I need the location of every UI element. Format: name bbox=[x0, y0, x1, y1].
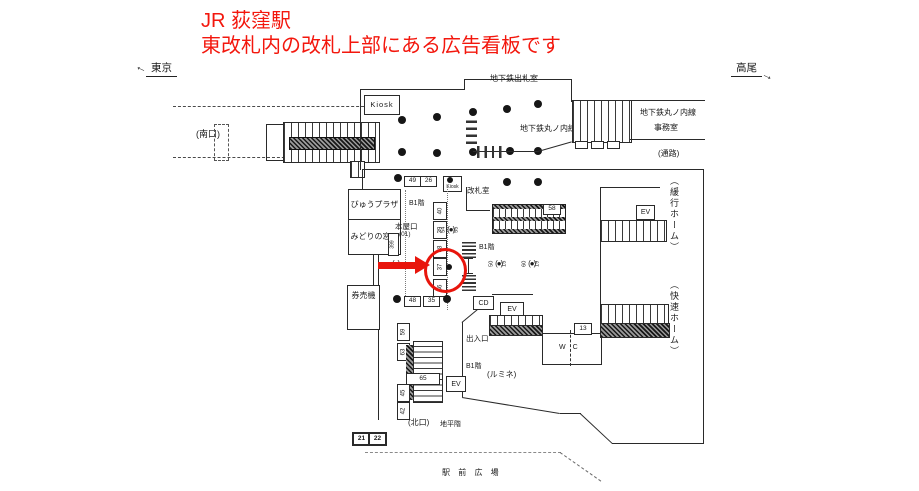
pillar-dot bbox=[393, 295, 401, 303]
annotation-circle bbox=[424, 248, 467, 293]
pillar-dot bbox=[534, 100, 542, 108]
position-box-58: 58 bbox=[543, 204, 561, 215]
marunouchi-stairs bbox=[572, 100, 632, 143]
hanging-sign: 50(●)15 bbox=[489, 260, 508, 268]
page-subtitle: 東改札内の改札上部にある広告看板です bbox=[201, 29, 561, 58]
gate-machines bbox=[493, 221, 565, 229]
gate-rail bbox=[493, 229, 565, 233]
rapid-platform-stairs bbox=[600, 304, 669, 325]
subway-gates bbox=[477, 146, 504, 158]
pillar-dot bbox=[433, 149, 441, 157]
billboard-box-40: 40 bbox=[433, 202, 447, 220]
rapid-platform-stairs-lower bbox=[600, 323, 670, 338]
wall-line bbox=[378, 322, 379, 420]
hanging-sign: 60(●)19 bbox=[522, 260, 541, 268]
wall-line bbox=[464, 79, 465, 90]
cd-box: CD bbox=[473, 296, 494, 310]
station-map: JR 荻窪駅 東改札内の改札上部にある広告看板です 東京 → 高尾 → (南口)… bbox=[0, 0, 919, 491]
position-box-26: 26 bbox=[420, 176, 437, 187]
direction-takao: 高尾 bbox=[731, 60, 762, 77]
stair-foot bbox=[575, 141, 588, 149]
station-square-label: 駅 前 広 場 bbox=[442, 467, 502, 478]
corridor-line bbox=[173, 106, 369, 107]
pillar-dot bbox=[443, 295, 451, 303]
entrance-label: 出入口 bbox=[466, 333, 489, 344]
position-box-22: 22 bbox=[368, 432, 387, 446]
ticket-machines-room: 券売機 bbox=[347, 285, 380, 330]
wall-line bbox=[560, 413, 581, 414]
b1-mid-label: B1階 bbox=[479, 242, 495, 252]
wall-line bbox=[362, 169, 363, 190]
wall-line bbox=[373, 253, 374, 286]
wall-line bbox=[362, 169, 703, 170]
central-stairs-lower bbox=[489, 325, 543, 336]
wall-line bbox=[630, 139, 705, 140]
ev-box-north: EV bbox=[446, 376, 466, 392]
pillar-dot bbox=[503, 178, 511, 186]
pillar-dot bbox=[447, 177, 453, 183]
wc-room: WC bbox=[542, 333, 602, 365]
rapid-platform-label: （快速ホーム） bbox=[668, 280, 681, 366]
pillar-dot bbox=[398, 116, 406, 124]
gate-rail bbox=[464, 258, 473, 259]
subway-gates bbox=[466, 119, 477, 144]
marunouchi-label: 地下鉄丸ノ内線 bbox=[520, 123, 576, 134]
position-box-65: 65 bbox=[406, 373, 440, 385]
lumine-label: (ルミネ) bbox=[487, 369, 516, 380]
annotation-arrow-shaft bbox=[378, 262, 415, 269]
pillar-dot bbox=[469, 108, 477, 116]
position-box-35: 35 bbox=[423, 296, 440, 307]
gate-rail bbox=[468, 258, 469, 274]
wall-line bbox=[466, 187, 467, 210]
local-platform-label: （緩行ホーム） bbox=[668, 176, 681, 262]
wall-line bbox=[600, 187, 660, 188]
wall-line bbox=[360, 89, 361, 170]
wall-line bbox=[571, 79, 572, 102]
position-box-13: 13 bbox=[574, 323, 592, 335]
column-grid-line bbox=[405, 190, 406, 300]
arrow-right-icon: → bbox=[760, 66, 777, 84]
wall-line bbox=[580, 413, 613, 444]
position-box-49: 49 bbox=[404, 176, 421, 187]
pillar-dot bbox=[534, 178, 542, 186]
pillar-dot bbox=[433, 113, 441, 121]
north-exit-label: (北口) bbox=[408, 417, 429, 428]
direction-tokyo: 東京 bbox=[146, 60, 177, 77]
wall-line bbox=[462, 397, 560, 414]
pillar-dot bbox=[394, 174, 402, 182]
ground-level-label: 地平階 bbox=[440, 419, 461, 429]
wall-line bbox=[360, 89, 465, 90]
stair-foot bbox=[591, 141, 604, 149]
wall-line bbox=[492, 294, 533, 295]
hanging-sign: 54(●)55 bbox=[441, 226, 460, 234]
b1-lower-label: B1階 bbox=[466, 361, 482, 371]
pillar-dot bbox=[503, 105, 511, 113]
stair-foot bbox=[607, 141, 620, 149]
wall-line bbox=[600, 187, 601, 305]
pillar-dot bbox=[398, 148, 406, 156]
gate-room-label: 改札室 bbox=[467, 185, 490, 196]
view-plaza-room: びゅうプラザ bbox=[348, 189, 401, 221]
south-escalator-band bbox=[289, 137, 375, 150]
position-box-59: 59 bbox=[397, 323, 410, 341]
wall-line bbox=[630, 100, 705, 101]
square-boundary bbox=[365, 452, 561, 453]
wall-line bbox=[612, 443, 704, 444]
wall-line bbox=[538, 141, 572, 152]
wall-line bbox=[466, 210, 490, 211]
square-boundary bbox=[560, 452, 602, 481]
position-box-48: 48 bbox=[404, 296, 421, 307]
wall-line bbox=[378, 253, 379, 286]
north-stairs bbox=[413, 341, 443, 403]
position-box-399: 399 bbox=[388, 233, 399, 256]
marunouchi-right-label: 地下鉄丸ノ内線 bbox=[640, 107, 696, 118]
office-label: 事務室 bbox=[654, 122, 678, 133]
b1-upper-label: B1階 bbox=[409, 198, 425, 208]
kiosk-box: Kiosk bbox=[364, 95, 400, 115]
pillar-dot bbox=[469, 148, 477, 156]
position-box-45: 45 bbox=[397, 384, 410, 402]
passage-label: (通路) bbox=[658, 148, 679, 159]
wall-line bbox=[703, 169, 704, 444]
b1-gates bbox=[462, 240, 476, 258]
south-passage bbox=[214, 124, 229, 161]
local-platform-stairs bbox=[600, 220, 667, 242]
wc-label: WC bbox=[559, 344, 585, 351]
ev-box-local: EV bbox=[636, 205, 655, 220]
subway-office-label: 地下鉄出札室 bbox=[490, 73, 538, 84]
